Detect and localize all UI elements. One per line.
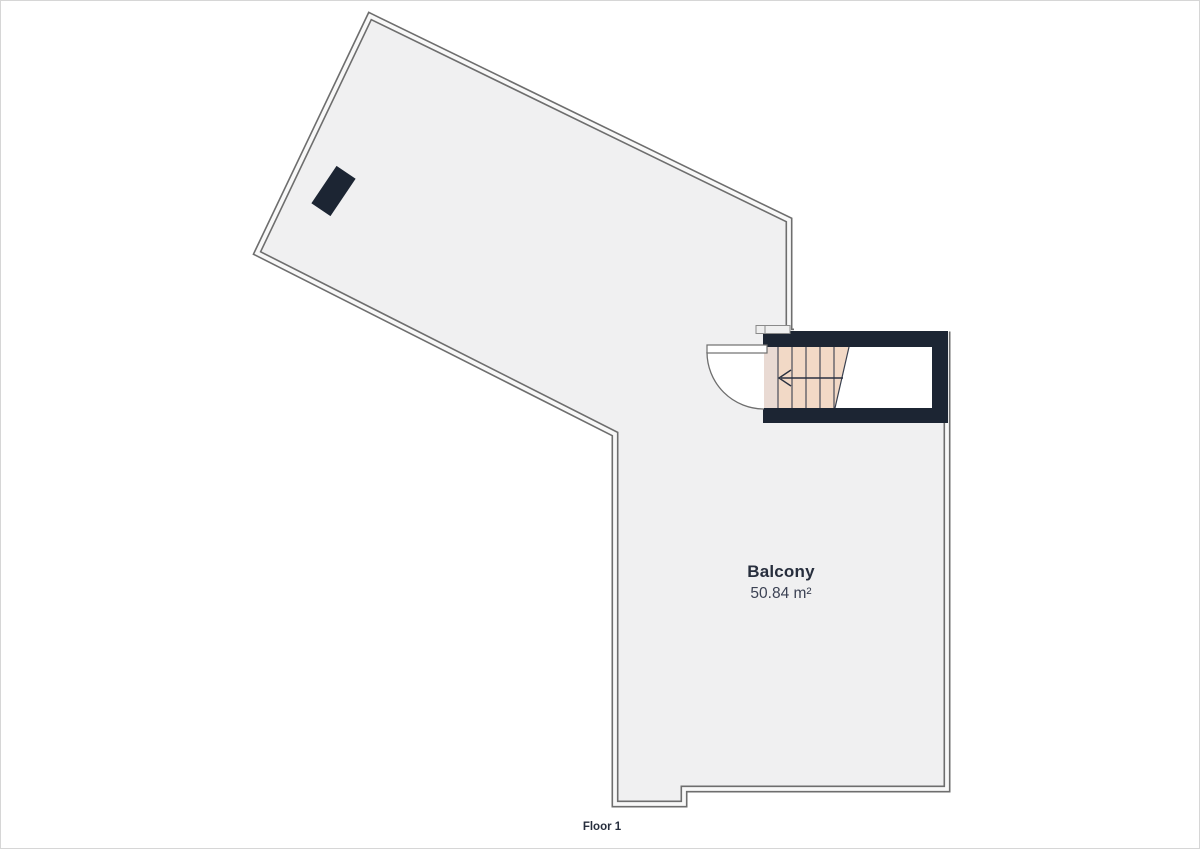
wall-junction [756,326,790,334]
door-leaf [707,345,767,353]
wall-top-cover [794,325,952,332]
staircase [763,331,948,423]
floorplan-drawing [1,1,1200,849]
floorplan-page: Balcony 50.84 m² Floor 1 [0,0,1200,849]
floor-title-label: Floor 1 [583,821,621,833]
room-area-label: 50.84 m² [750,585,811,603]
stair-landing [764,347,778,408]
room-name-label: Balcony [747,562,815,582]
